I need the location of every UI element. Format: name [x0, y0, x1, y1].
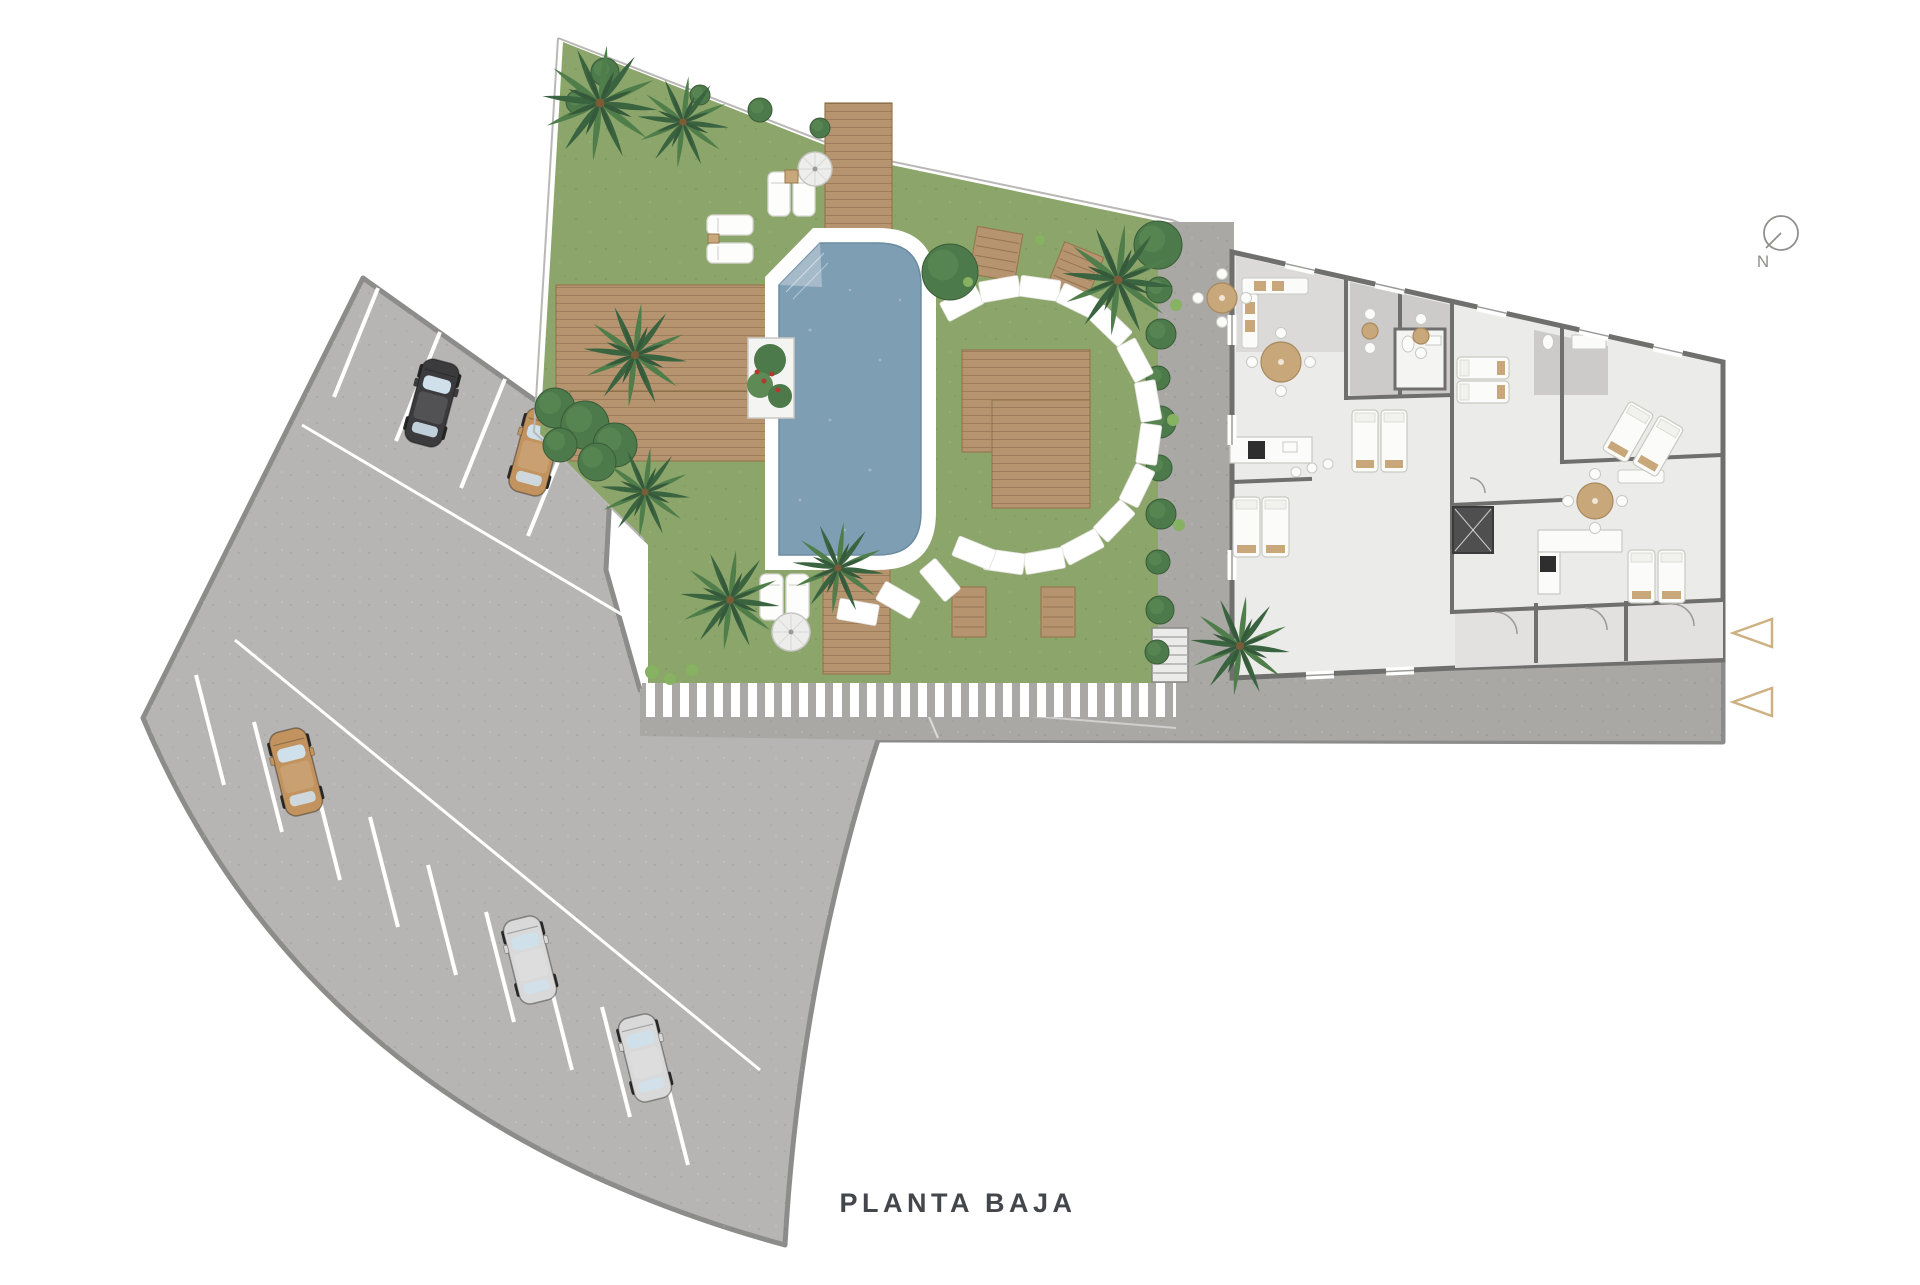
garden-bench-icon	[952, 587, 986, 637]
boardwalk-slats	[642, 683, 1176, 717]
site-plan: N PLANTA BAJA	[0, 0, 1920, 1280]
window-icon	[1228, 315, 1237, 345]
stove-icon	[1540, 556, 1556, 572]
grass-tuft-icon	[686, 664, 698, 676]
bush-icon	[748, 98, 772, 122]
garden-bench-icon	[1041, 587, 1075, 637]
entrance-arrows	[1733, 619, 1772, 716]
hedge-bush-icon	[1146, 277, 1172, 303]
compass-needle	[1766, 233, 1781, 248]
bush-icon	[543, 428, 577, 462]
table-set-icon	[1362, 309, 1378, 354]
compass-north-label: N	[1757, 252, 1769, 271]
grass-tuft-icon	[1173, 519, 1185, 531]
sun-lounger-icon	[707, 243, 753, 263]
side-table	[785, 170, 798, 183]
grass-tuft-icon	[1170, 299, 1182, 311]
parasol-icon	[772, 613, 810, 651]
parasol-icon	[798, 152, 832, 186]
sun-lounger-icon	[707, 215, 753, 235]
table-set-icon	[1413, 314, 1429, 359]
planter	[747, 338, 794, 418]
apartment-building	[1193, 252, 1724, 680]
bed-icon	[1352, 410, 1378, 472]
window-icon	[1386, 666, 1414, 675]
bed-icon	[1381, 410, 1407, 472]
window-icon	[1306, 670, 1334, 679]
hedge-bush-icon	[1146, 499, 1176, 529]
window-icon	[1228, 415, 1237, 445]
bed-icon	[1457, 357, 1509, 379]
bed-icon	[1262, 497, 1289, 557]
bed-icon	[1457, 381, 1509, 403]
grass-tuft-icon	[664, 673, 676, 685]
bed-icon	[1233, 497, 1260, 557]
side-table	[708, 234, 719, 243]
hedge-bush-icon	[1146, 550, 1170, 574]
toilet-icon	[1402, 336, 1414, 352]
bush-icon	[810, 118, 830, 138]
hedge-bush-icon	[1146, 596, 1174, 624]
sun-lounger-icon	[760, 574, 783, 620]
compass: N	[1757, 216, 1798, 271]
plan-title: PLANTA BAJA	[840, 1188, 1077, 1218]
grass-tuft-icon	[1167, 414, 1179, 426]
bush-icon	[922, 244, 978, 300]
grass-tuft-icon	[1035, 235, 1045, 245]
grass-tuft-icon	[963, 277, 973, 287]
bed-icon	[1658, 550, 1685, 603]
entrance-arrow-icon	[1733, 688, 1772, 716]
bush-icon	[578, 443, 616, 481]
bed-icon	[1628, 550, 1655, 603]
grass-tuft-icon	[645, 665, 659, 679]
entrance-arrow-icon	[1733, 619, 1772, 647]
hedge-bush-icon	[1145, 640, 1169, 664]
hedge-bush-icon	[1146, 319, 1176, 349]
toilet-icon	[1543, 335, 1554, 350]
elevator	[1453, 507, 1493, 553]
stove-icon	[1248, 441, 1265, 459]
floor-plan-canvas: N PLANTA BAJA	[0, 0, 1920, 1280]
